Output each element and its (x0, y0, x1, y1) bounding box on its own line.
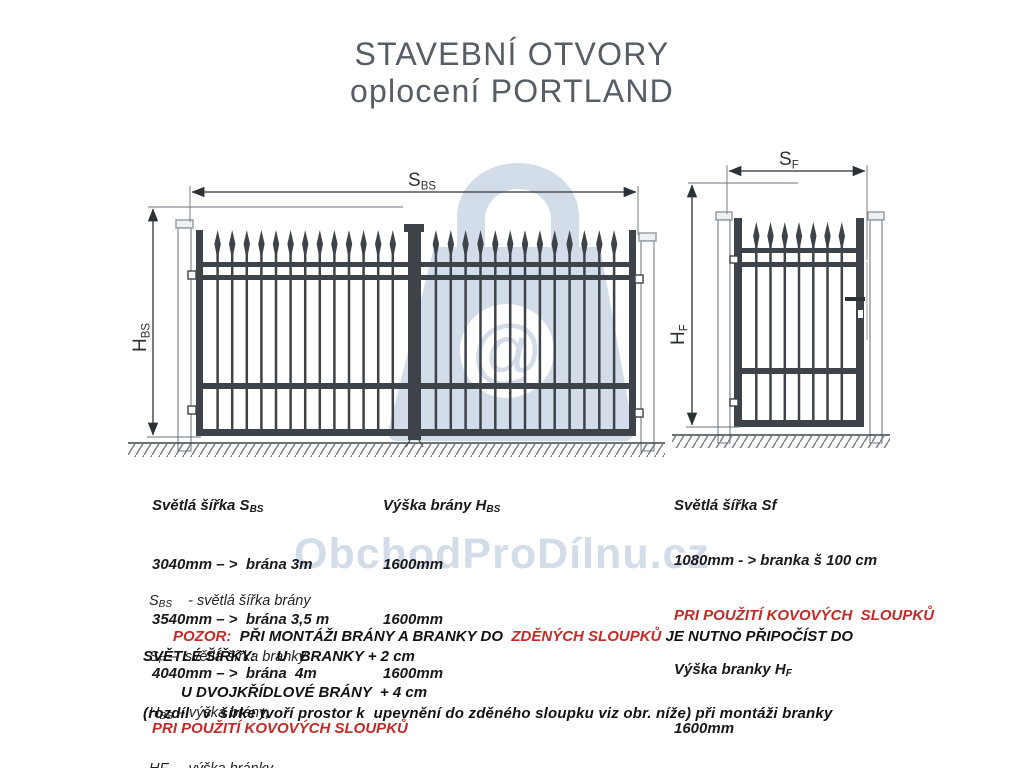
wicket-diagram: SF HF (668, 149, 890, 449)
hbs-dim-label: HBS (130, 323, 153, 352)
warning-label: POZOR: (173, 628, 231, 645)
wicket-height-value: 1600mm (674, 720, 934, 738)
gate-width-heading: Světlá šířka SBS (152, 497, 408, 519)
wicket-width-heading: Světlá šířka Sf (674, 497, 934, 515)
watermark-at-glyph: @ (470, 312, 543, 392)
title-line1: STAVEBNÍ OTVORY (0, 36, 1024, 73)
dimension-sbs: SBS (190, 170, 638, 235)
legend-row: HF – výška bránky (149, 761, 311, 768)
gate-frame (196, 224, 636, 440)
dimension-sf: SF (727, 149, 867, 260)
footnote-line2: (rozdíl v šírke tvoří prostor k upevnění… (143, 705, 833, 722)
dimension-hf: HF (668, 183, 798, 427)
wicket-height-heading: Výška branky HF (674, 661, 934, 683)
ground-left (128, 443, 665, 457)
dimension-hbs: HBS (130, 207, 403, 437)
page: STAVEBNÍ OTVORY oplocení PORTLAND Obchod… (0, 0, 1024, 768)
gate-height-heading: Výška brány HBS (383, 497, 500, 519)
gate-posts (176, 220, 656, 451)
page-title: STAVEBNÍ OTVORY oplocení PORTLAND (0, 36, 1024, 110)
gate-diagram: SBS HBS (128, 170, 665, 457)
warning-line2: SVĚTLÉ ŠÍŘKY: U BRANKY + 2 cm (143, 648, 415, 665)
title-line2: oplocení PORTLAND (0, 73, 1024, 110)
gate-height-row: 1600mm (383, 556, 500, 574)
wicket-pickets (753, 222, 845, 449)
gate-height-row: 1600mm (383, 611, 500, 629)
ground-right (672, 435, 890, 448)
gate-left-leaf-pickets (214, 230, 396, 457)
wicket-hinges (730, 256, 738, 406)
gate-drop-rod-detail (406, 440, 423, 447)
legend-row: SBS - světlá šířka brány (149, 593, 311, 614)
wicket-posts (716, 212, 884, 443)
wicket-note: PRI POUŽITÍ KOVOVÝCH SLOUPKŮ (674, 607, 934, 625)
warning-line1: POZOR: PŘI MONTÁŽI BRÁNY A BRANKY DO ZDĚ… (173, 628, 853, 645)
gate-height-specs: Výška brány HBS 1600mm 1600mm 1600mm (383, 461, 500, 720)
warning-highlight: ZDĚNÝCH SLOUPKŮ (511, 628, 661, 645)
gate-right-leaf-pickets (433, 230, 618, 457)
wicket-handle (845, 262, 867, 340)
gate-hinges (188, 271, 643, 417)
wicket-frame (734, 218, 864, 427)
hf-dim-label: HF (668, 324, 691, 345)
watermark-padlock-icon: @ (388, 163, 633, 441)
sf-dim-label: SF (779, 149, 799, 172)
gate-height-row: 1600mm (383, 665, 500, 683)
sbs-dim-label: SBS (408, 170, 436, 193)
footnote-line1: U DVOJKŘÍDLOVÉ BRÁNY + 4 cm (181, 684, 427, 701)
wicket-width-value: 1080mm - > branka š 100 cm (674, 552, 934, 570)
